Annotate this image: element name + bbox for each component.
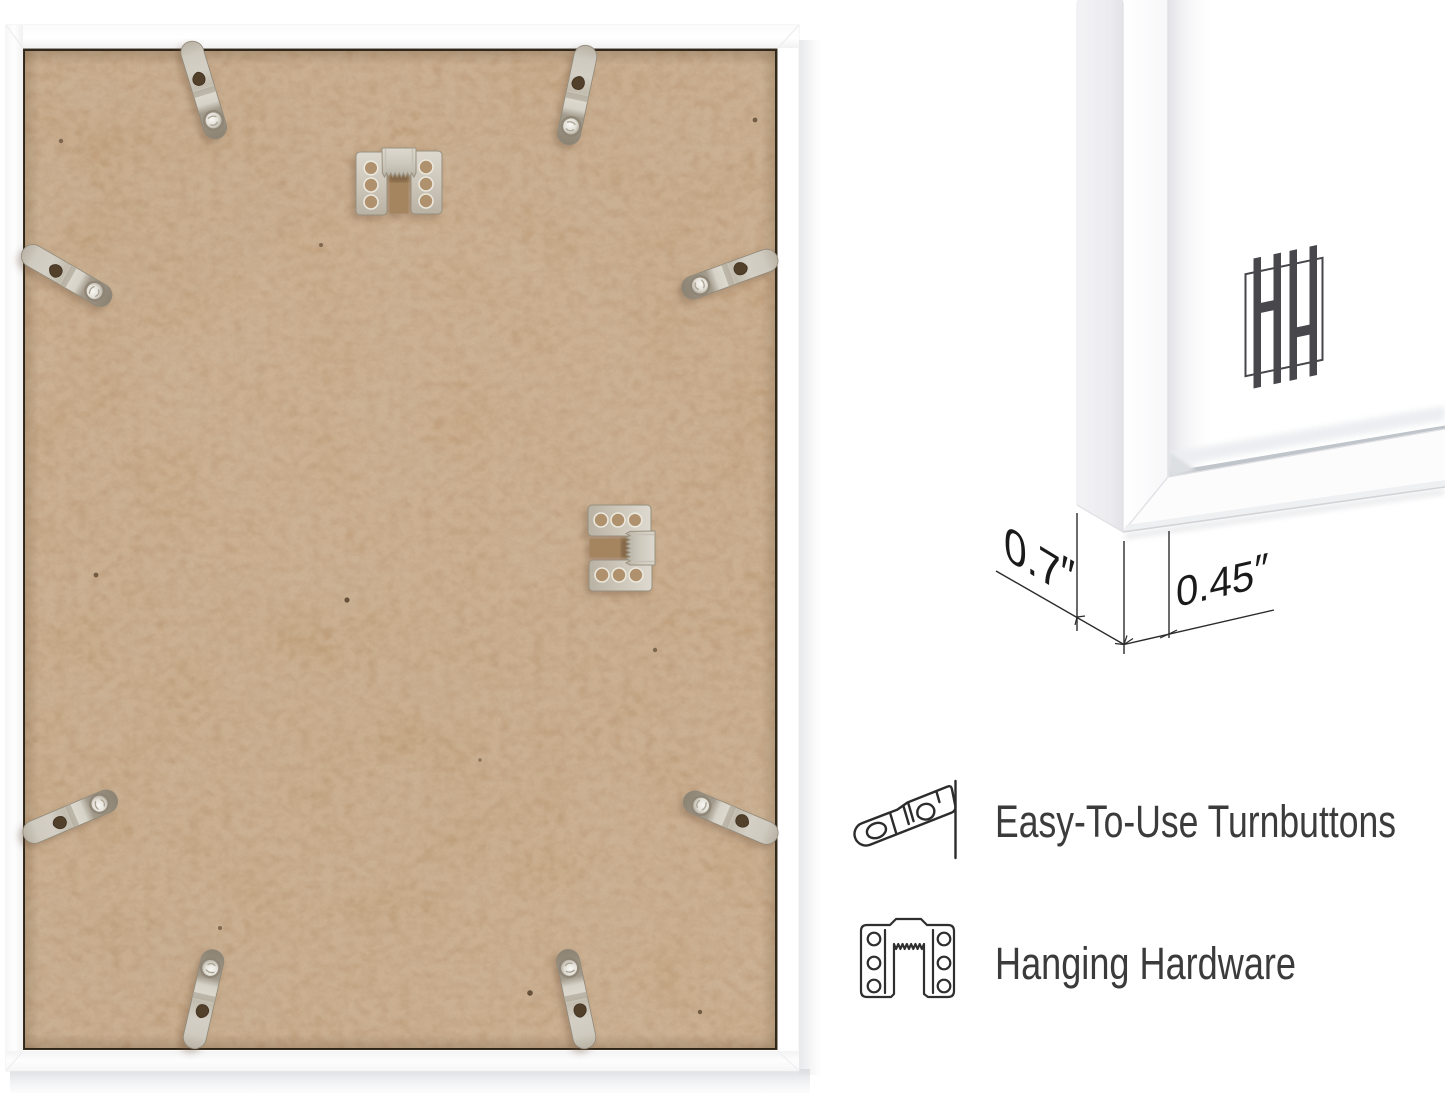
svg-text:Easy-To-Use Turnbuttons: Easy-To-Use Turnbuttons [995,796,1396,847]
svg-text:0.45″: 0.45″ [1176,544,1269,616]
svg-text:Hanging Hardware: Hanging Hardware [995,938,1296,989]
